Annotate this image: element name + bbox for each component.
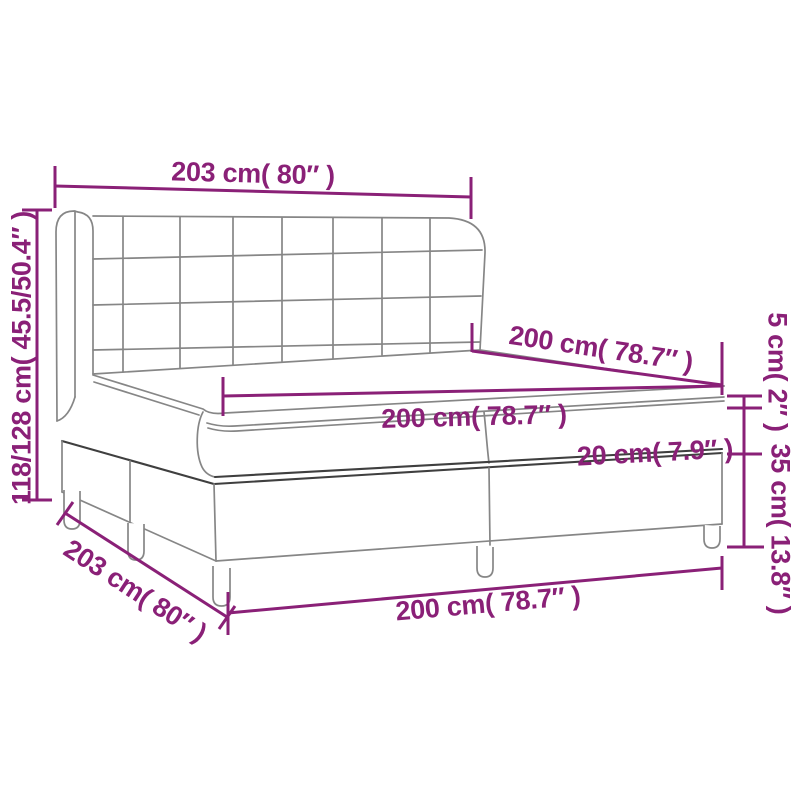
headboard-bottom-edge (93, 350, 480, 374)
base-top-edge-left (62, 441, 214, 484)
base-front-bottom-edge (216, 524, 722, 561)
label-headboard-width: 203 cm( 80″ ) (171, 156, 335, 191)
label-bed-height: 118/128 cm( 45.5/50.4″ ) (7, 211, 38, 505)
bed-leg (704, 525, 720, 548)
dim-right-height-bracket (727, 396, 764, 547)
mattress-left-corner (197, 412, 215, 477)
headboard-wing-bottom (57, 397, 75, 421)
label-mattress-width: 200 cm( 78.7″ ) (381, 399, 567, 435)
base-front-corner-edge (214, 484, 216, 561)
label-topper-thickness: 5 cm( 2″ ) (762, 312, 793, 431)
diagram-canvas: 203 cm( 80″ ) 118/128 cm( 45.5/50.4″ ) 2… (0, 0, 800, 800)
headboard-panel (93, 216, 485, 350)
bed-leg (477, 546, 493, 577)
label-base-height: 35 cm( 13.8″ ) (765, 444, 796, 615)
bed-line-drawing (0, 0, 800, 800)
base-front-split (489, 468, 490, 545)
topper-left-edge (94, 382, 199, 415)
headboard-tufting-grid (93, 217, 482, 372)
